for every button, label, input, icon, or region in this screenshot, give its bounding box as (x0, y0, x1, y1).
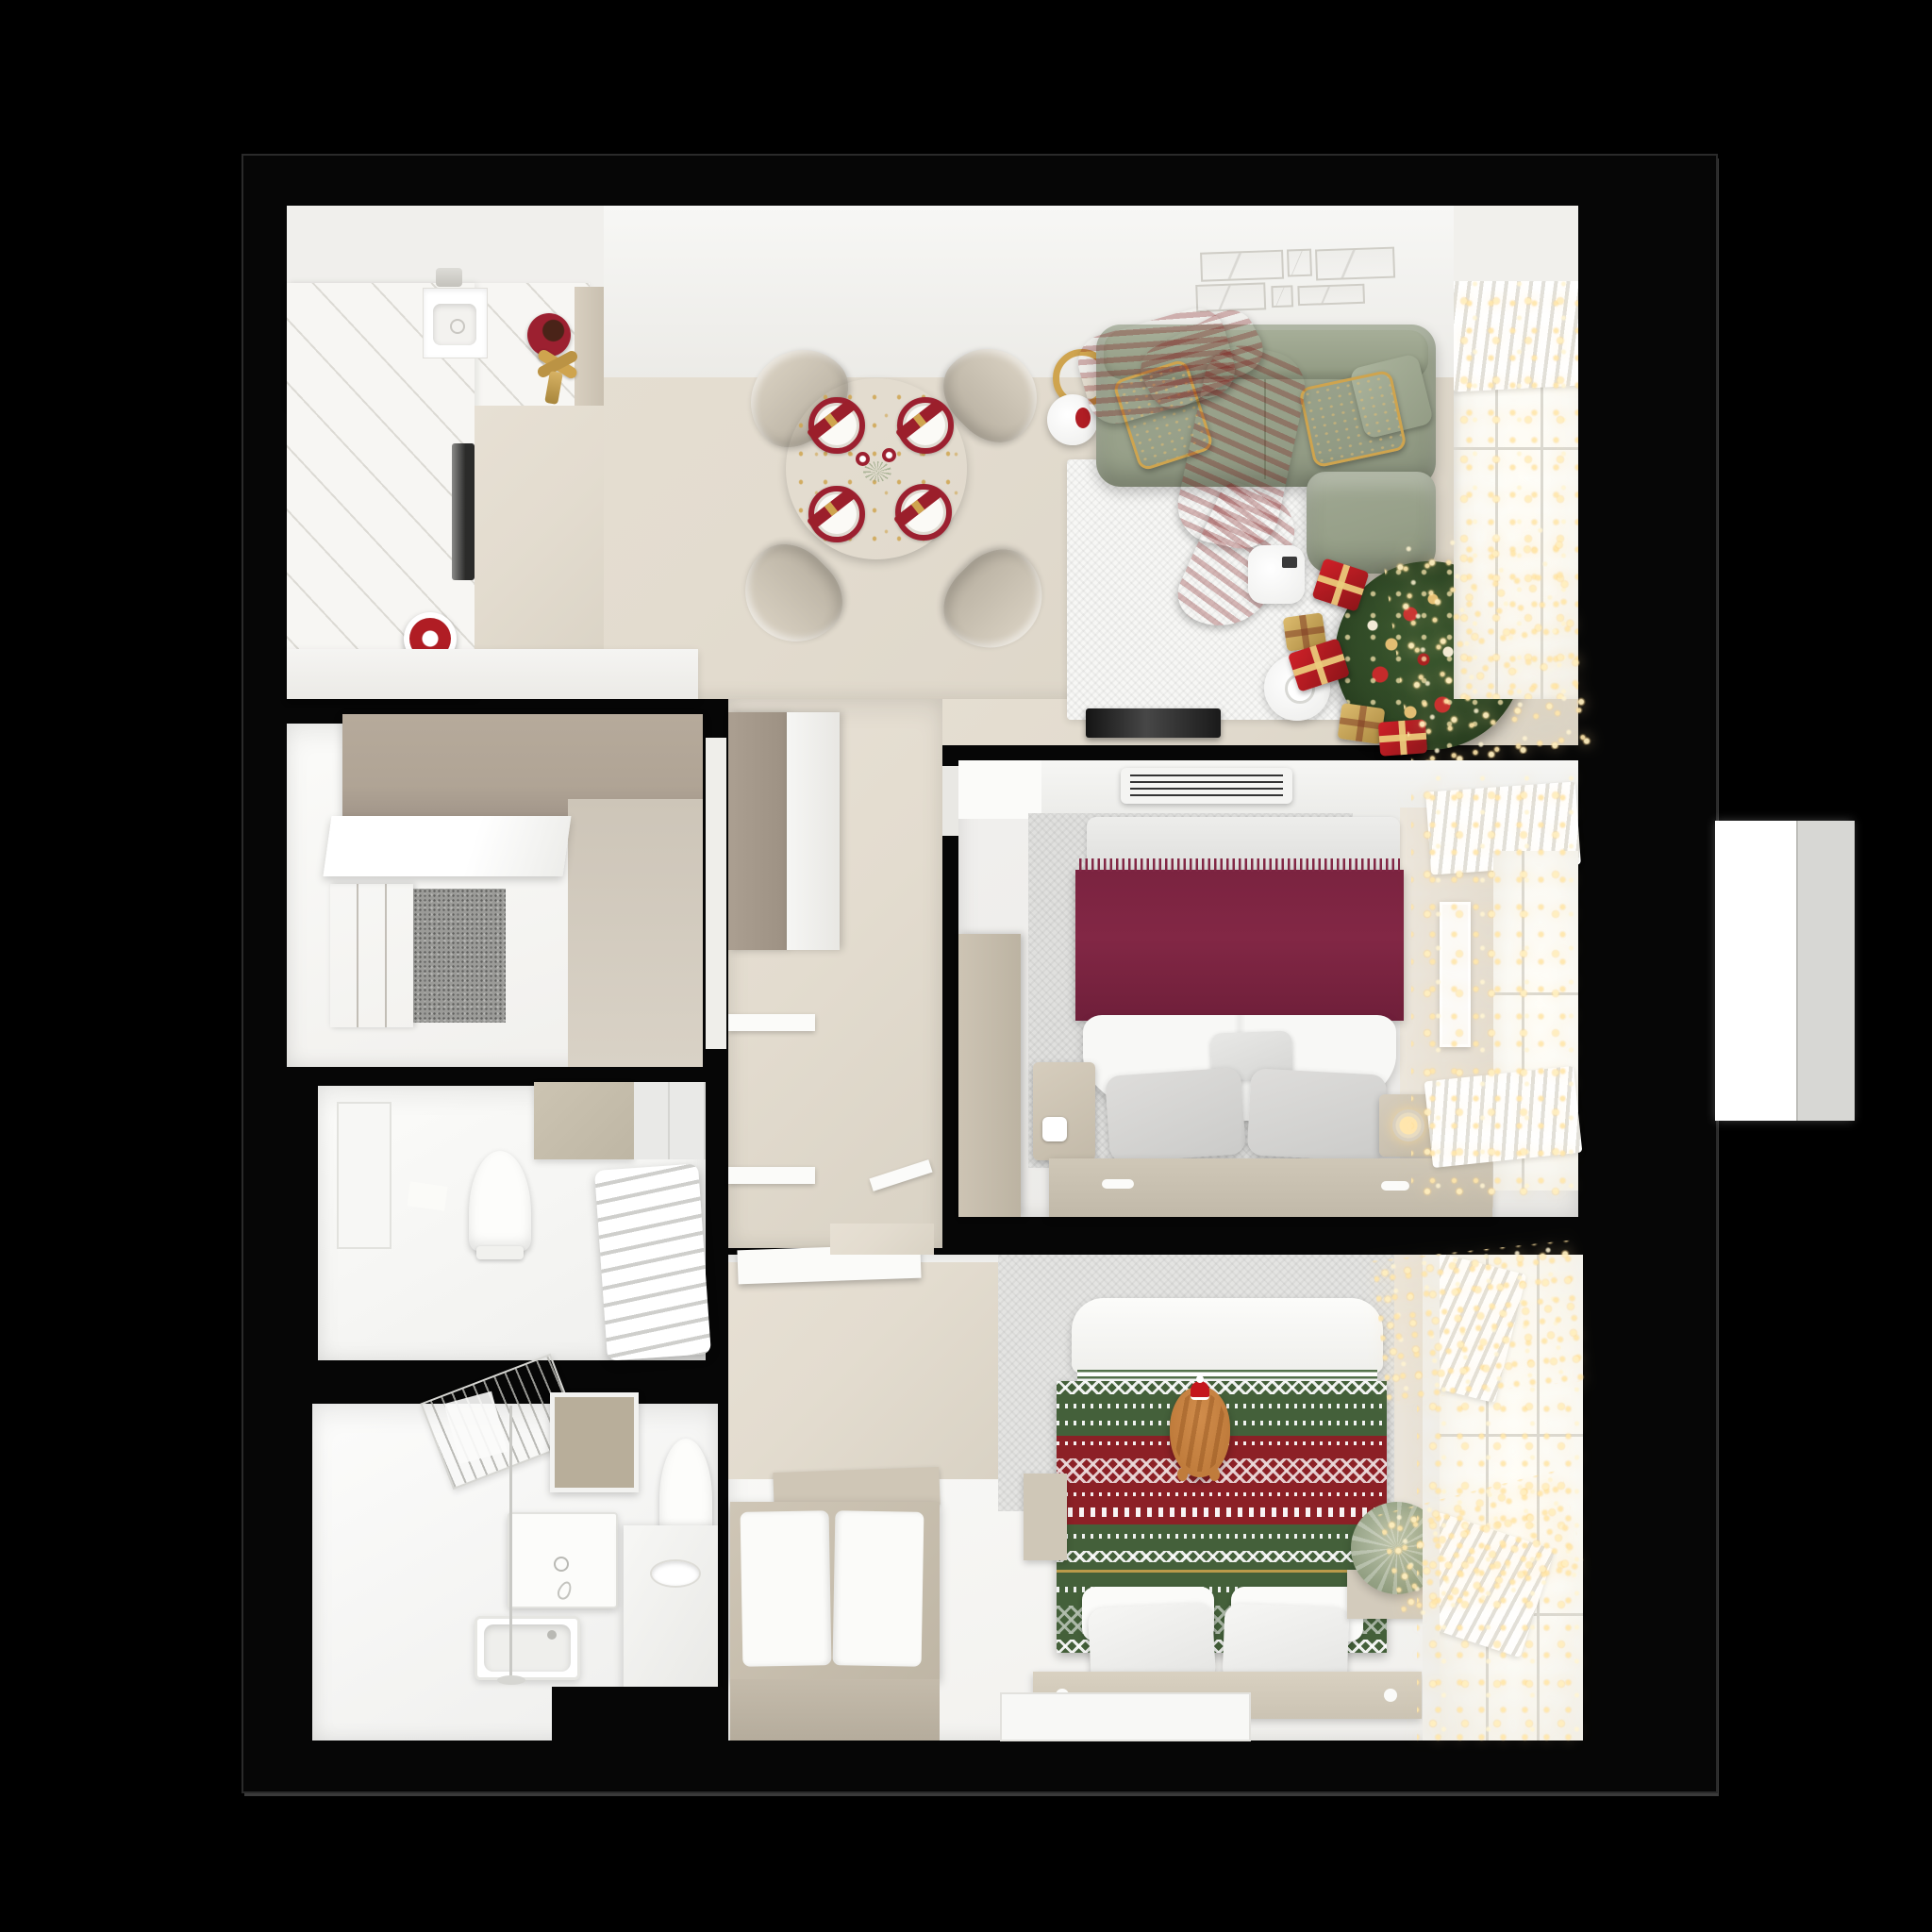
bed2-side-block (1024, 1474, 1067, 1560)
window-mullion (1437, 1434, 1583, 1437)
room-living (287, 206, 1578, 699)
tub-basin (484, 1624, 571, 1672)
bathtub (475, 1616, 580, 1680)
red-napkin (807, 399, 856, 441)
table-plate (895, 484, 952, 541)
corridor-door-slab (728, 1167, 815, 1184)
roller-blind-stack (1424, 1066, 1583, 1168)
wc-tile-panel (534, 1082, 634, 1159)
bedroom2-floor-rug-outline (1000, 1692, 1251, 1741)
room-wc (318, 1086, 706, 1360)
candle (1384, 1689, 1397, 1702)
wall-art-frame (1297, 284, 1365, 306)
knit-gold-line (1057, 1570, 1387, 1573)
nightstand-left (1033, 1062, 1095, 1160)
entry-right-wall-face (568, 799, 703, 1067)
floor-lamp-base (497, 1675, 525, 1685)
bathroom-toilet (659, 1439, 712, 1537)
hanging-cloth (444, 1391, 508, 1464)
knit-dots (1057, 1534, 1387, 1539)
bench-cushion (741, 1510, 832, 1667)
wall-art-frame (1271, 285, 1293, 308)
table-plate (808, 397, 865, 454)
threshold-entry (706, 738, 726, 1049)
knit-zigzag (1057, 1381, 1387, 1394)
dining-chair (927, 533, 1063, 669)
floor-sheet (407, 1181, 447, 1210)
humidifier (1248, 545, 1305, 604)
threshold-bedroom1-door (942, 766, 958, 836)
bed1-platform (1049, 1158, 1492, 1217)
wall-art-frame (1287, 249, 1312, 277)
wall-art-frame (1200, 250, 1284, 282)
throw-fringe (1079, 858, 1400, 872)
red-napkin (893, 486, 942, 528)
floorplan-stage (0, 0, 1932, 1932)
wc-door-panel (337, 1102, 391, 1249)
room-corridor (728, 699, 942, 1248)
bedroom1-door-area (958, 760, 1041, 819)
vanity-counter (624, 1525, 718, 1691)
smart-speaker (1042, 1117, 1067, 1141)
bed1-pillow-right (1247, 1068, 1388, 1161)
cat-paw (1177, 1468, 1188, 1481)
room-bedroom-master (958, 760, 1578, 1217)
bed2-duvet (1072, 1298, 1383, 1374)
roller-blind-stack (1437, 1255, 1526, 1403)
kitchen-sink (423, 288, 488, 358)
tv-console (1086, 708, 1221, 738)
room-bedroom-second (728, 1255, 1583, 1740)
corridor-door-slab (728, 1014, 815, 1031)
ac-vent (1121, 768, 1292, 804)
red-ramekin (882, 448, 896, 462)
living-wall-above-window (1454, 206, 1578, 281)
tub-faucet (547, 1630, 557, 1640)
table-plate (808, 486, 865, 542)
sink-drain (450, 319, 465, 334)
window-mullion (1493, 992, 1578, 995)
table-plate (897, 397, 954, 454)
kitchen-lower-cabinet-band (287, 649, 698, 699)
remote (1381, 1181, 1409, 1191)
wc-toilet (469, 1151, 531, 1251)
wall-light-frame (1440, 902, 1471, 1047)
wall-art-group (1200, 243, 1405, 308)
bench-front (730, 1679, 940, 1740)
vanity-sink (650, 1559, 701, 1588)
gold-bow (532, 351, 583, 408)
bedroom2-window (1437, 1255, 1583, 1740)
red-napkin (807, 488, 856, 530)
bedroom2-entry-floor (728, 1262, 998, 1479)
entry-doormat (413, 889, 506, 1023)
kitchen-faucet (436, 268, 462, 287)
bathroom-mirror (550, 1392, 639, 1492)
window-mullion (1454, 447, 1578, 450)
red-napkin (895, 399, 944, 441)
kitchen-oven (452, 443, 475, 580)
room-entry-hall (287, 724, 703, 1067)
corridor-closet-white-panel (787, 712, 840, 950)
exterior-cut-panel (1715, 821, 1853, 1121)
floor-lamp-pole (509, 1406, 512, 1683)
knit-dots (1057, 1492, 1387, 1496)
master-wardrobe-column (958, 934, 1021, 1217)
window-mullion (1537, 1255, 1540, 1740)
exterior-cut-panel-shade (1796, 821, 1855, 1121)
knit-arrows (1057, 1507, 1387, 1517)
dining-table (786, 378, 967, 559)
room-kitchen (287, 206, 604, 699)
red-ramekin (856, 452, 870, 466)
entry-wardrobe (330, 884, 413, 1027)
bench-cushion (833, 1510, 924, 1667)
entry-console-shelf (324, 816, 572, 876)
cat-paw (1209, 1468, 1220, 1481)
ginger-cat (1170, 1387, 1230, 1477)
threshold-bedroom2-door (830, 1224, 934, 1255)
remote (1102, 1179, 1134, 1189)
sprig (863, 461, 891, 482)
wall-art-frame (1195, 282, 1266, 312)
corridor-door-leaf (869, 1159, 932, 1191)
santa-hat-pom (1196, 1375, 1204, 1383)
bed1-pillow-left (1105, 1067, 1246, 1163)
towel-radiator (594, 1163, 711, 1360)
washing-machine (508, 1512, 618, 1608)
cat-santa-hat (1191, 1381, 1209, 1400)
corridor-closet-taupe-door (728, 712, 787, 950)
living-window (1454, 281, 1578, 699)
wall-notch (552, 1687, 722, 1743)
glow-lamp (1392, 1109, 1424, 1141)
knit-zigzag (1057, 1551, 1387, 1562)
wall-art-frame (1315, 247, 1395, 281)
red-candle (1075, 408, 1091, 428)
gift-box (1378, 719, 1427, 756)
curtain-strip (1423, 1255, 1440, 1740)
humidifier-screen (1282, 557, 1297, 568)
roller-blind (1454, 281, 1578, 392)
wc-gray-tiles (634, 1082, 706, 1159)
table-centerpiece (856, 448, 897, 490)
bed1-burgundy-throw (1075, 870, 1404, 1021)
